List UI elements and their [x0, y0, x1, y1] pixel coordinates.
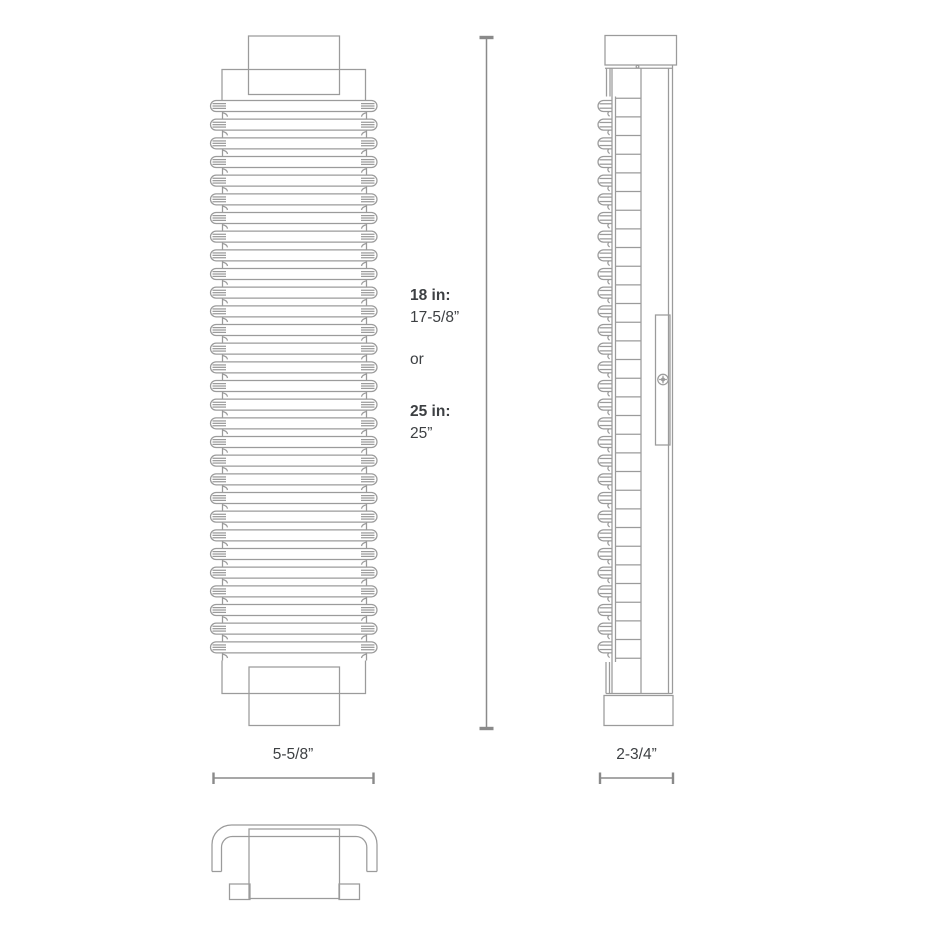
- front-bottom-box: [249, 667, 340, 726]
- height-dimension-line: [480, 38, 494, 729]
- height-option2-label: 25 in:: [410, 403, 450, 421]
- phillips-screw-icon: [658, 374, 668, 384]
- front-top-plate: [222, 70, 366, 101]
- width-dimension-line: [214, 773, 374, 785]
- depth-dimension-label: 2-3/4”: [597, 746, 676, 764]
- front-ribbed-body: [211, 101, 378, 661]
- side-top-box: [605, 36, 677, 66]
- seam-dot: [636, 65, 639, 68]
- side-view-drawing: [598, 36, 677, 726]
- diagram-canvas: [0, 0, 943, 943]
- left-tab: [230, 884, 251, 900]
- right-tab: [339, 884, 360, 900]
- front-bottom-plate: [222, 661, 366, 694]
- height-option2-value: 25”: [410, 425, 432, 443]
- depth-dimension-line: [600, 773, 673, 785]
- side-bottom-strip: [606, 662, 610, 694]
- height-option1-value: 17-5/8”: [410, 309, 459, 327]
- front-top-box: [249, 36, 340, 95]
- side-bottom-box: [604, 696, 673, 726]
- bottom-view-drawing: [212, 825, 377, 900]
- height-option1-label: 18 in:: [410, 287, 450, 305]
- width-dimension-label: 5-5/8”: [208, 746, 378, 764]
- spec-sheet-diagram: 18 in: 17-5/8” or 25 in: 25” 5-5/8” 2-3/…: [0, 0, 943, 943]
- front-view-drawing: [211, 36, 378, 726]
- bottom-view-box: [249, 829, 340, 899]
- height-option-separator: or: [410, 351, 424, 369]
- shell-inner-profile: [222, 837, 367, 872]
- shell-outer-profile: [212, 825, 377, 872]
- side-top-strip: [607, 68, 611, 96]
- side-rib-profile: [598, 98, 641, 658]
